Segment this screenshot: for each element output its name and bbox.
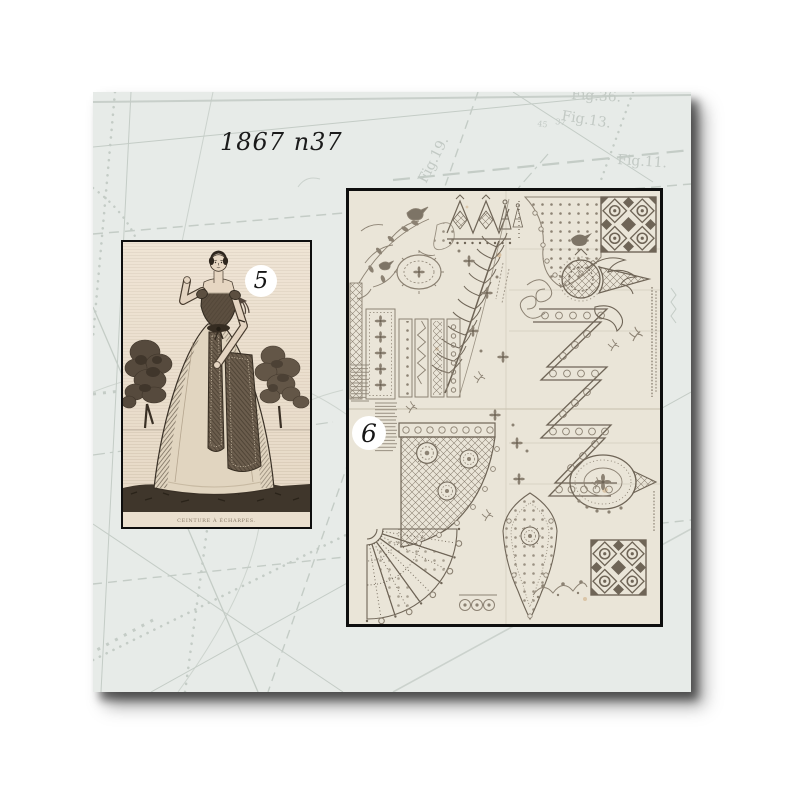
fashion-plate-frame: 5 CEINTURE À ÉCHARPES. [121,240,312,529]
fashion-plate-engraving [123,242,310,527]
scanned-pattern-page: Fig.36. Fig.13. Fig.11. Fig.19. 45 37 18… [93,92,691,692]
embroidery-sheet-frame: 6 [346,188,663,627]
embroidery-pattern-sheet [349,191,660,624]
left-lattice-band [350,283,362,399]
diamond-tile-top-right [601,197,656,252]
fig-label-13: Fig.13. [560,108,612,132]
page-title: 1867 n37 [220,128,343,156]
fig-label-11: Fig.11. [617,152,668,171]
plate-number-badge-5: 5 [245,265,277,297]
bg-number-45: 45 [537,119,548,129]
screenshot-canvas: { "canvas": { "background_color": "#ffff… [0,0,800,800]
plate-number-badge-6: 6 [352,416,386,450]
bg-number-37: 37 [555,117,566,127]
fig-label-19: Fig.19. [415,134,452,186]
fashion-plate-caption: CEINTURE À ÉCHARPES. [123,518,310,524]
diamond-tile-bottom-right [591,540,646,595]
fig-label-top: Fig.36. [571,92,622,106]
